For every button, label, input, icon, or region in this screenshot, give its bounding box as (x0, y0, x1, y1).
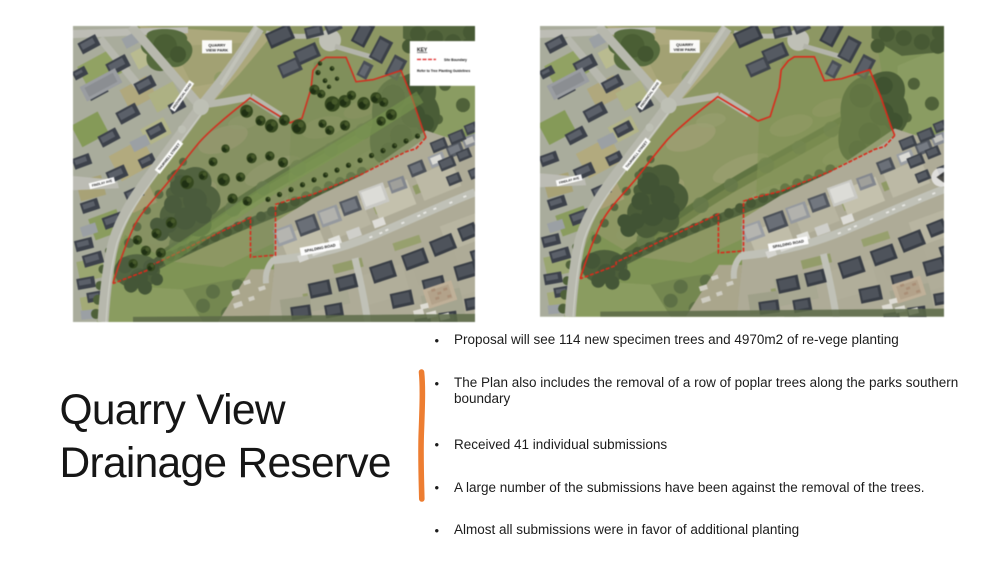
svg-text:Refer to Tree Planting Guideli: Refer to Tree Planting Guidelines (417, 69, 470, 73)
svg-text:KEY: KEY (417, 47, 428, 53)
svg-text:Site Boundary: Site Boundary (444, 58, 467, 62)
